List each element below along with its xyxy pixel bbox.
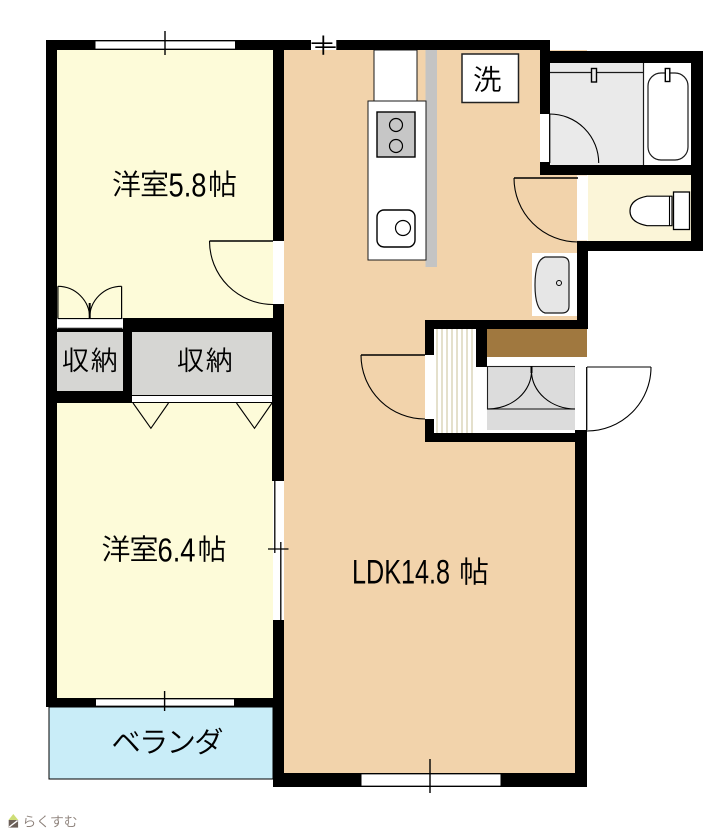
svg-text:5.8: 5.8	[169, 168, 207, 205]
svg-text:6.4: 6.4	[158, 533, 196, 570]
svg-text:LDK14.8: LDK14.8	[352, 554, 450, 592]
